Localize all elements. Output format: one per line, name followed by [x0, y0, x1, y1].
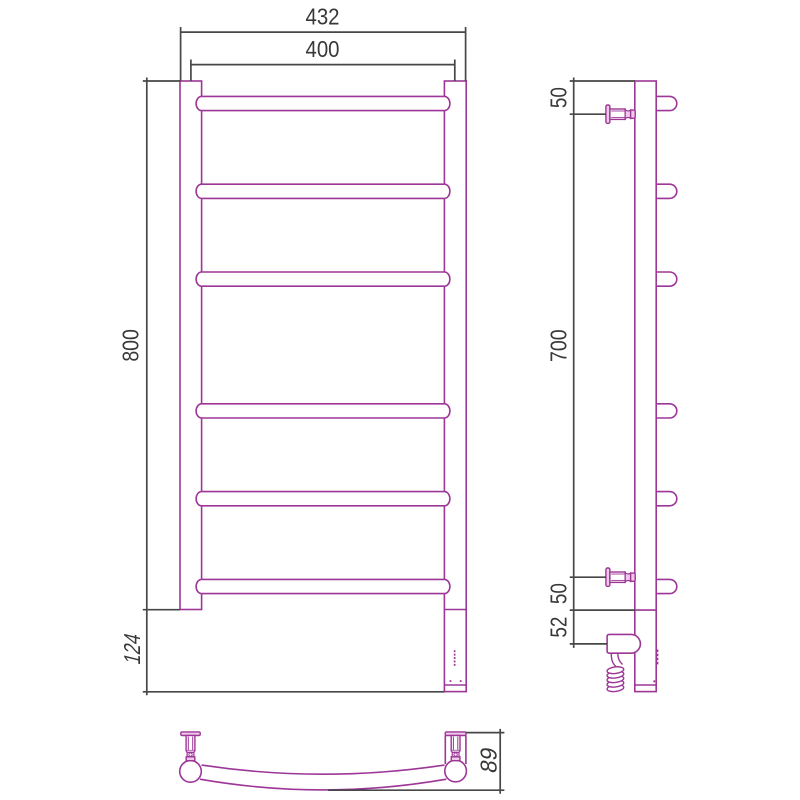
svg-text:700: 700 [546, 329, 572, 362]
svg-text:124: 124 [120, 630, 146, 666]
svg-text:89: 89 [476, 745, 502, 775]
svg-text:50: 50 [546, 87, 572, 108]
svg-text:52: 52 [546, 617, 572, 638]
svg-text:50: 50 [546, 583, 572, 604]
svg-text:400: 400 [306, 36, 340, 62]
svg-text:432: 432 [306, 4, 340, 30]
svg-text:800: 800 [118, 329, 144, 362]
